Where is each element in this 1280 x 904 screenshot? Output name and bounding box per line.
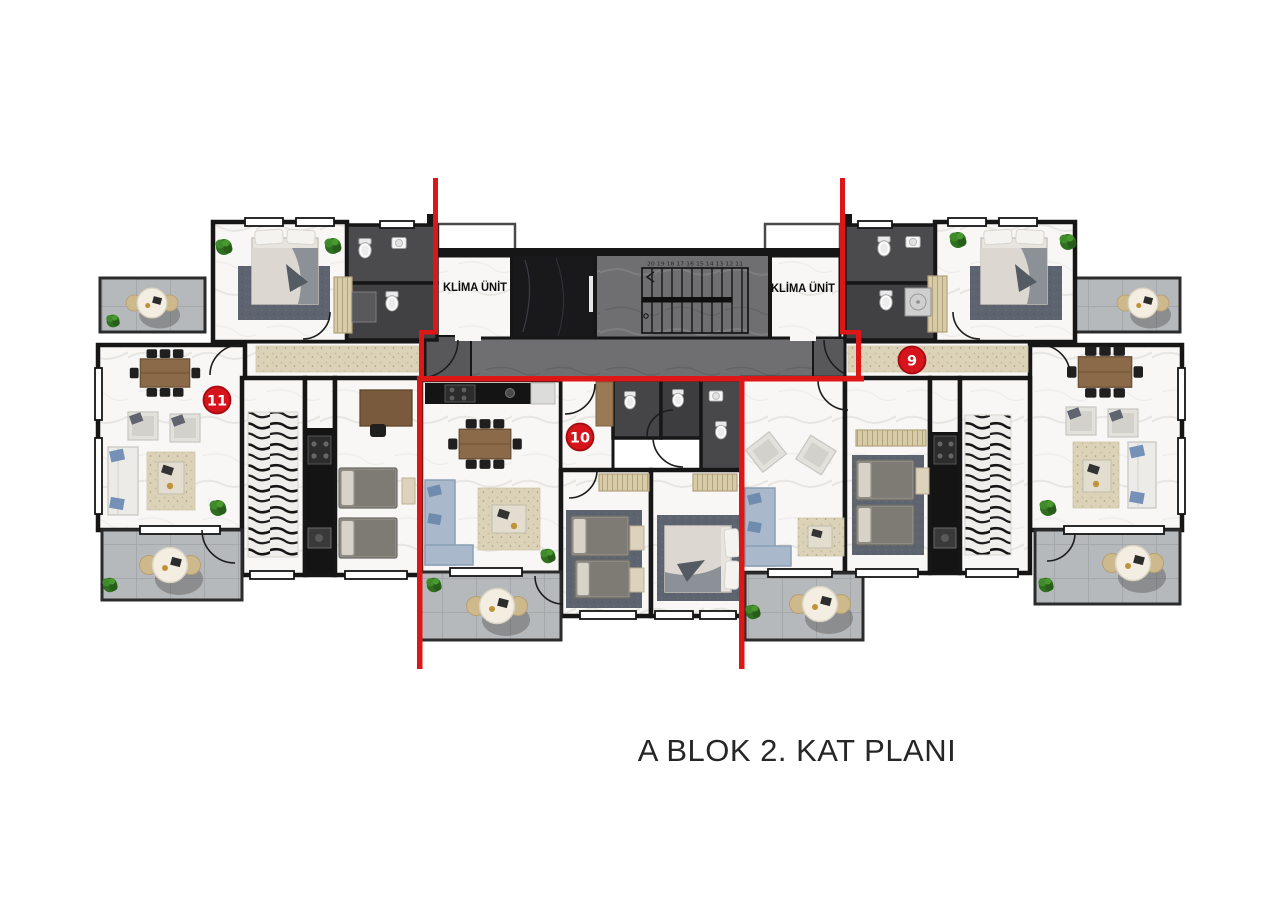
bathroom-middle-2 xyxy=(661,380,701,438)
shower-icon xyxy=(905,288,931,316)
window xyxy=(1178,438,1185,514)
toilet-icon xyxy=(386,292,398,311)
unit-badge-10: 10 xyxy=(567,424,594,451)
klima-unit-label-left: KLİMA ÜNİT xyxy=(443,279,508,294)
window xyxy=(700,611,736,619)
sink-icon xyxy=(906,237,920,248)
floor-plan-page: 20 19 18 17 16 15 14 13 12 11 1 2 3 4 5 … xyxy=(0,0,1280,904)
toilet-icon xyxy=(878,237,890,256)
window xyxy=(140,526,220,534)
window xyxy=(380,221,414,228)
red-line-vertical-top-left xyxy=(433,178,438,334)
coffee-table-small-living xyxy=(798,518,844,556)
central-core: 20 19 18 17 16 15 14 13 12 11 1 2 3 4 5 … xyxy=(420,214,862,380)
unit-badge-11: 11 xyxy=(204,387,231,414)
window xyxy=(1064,526,1164,534)
sofa-right xyxy=(1128,442,1156,508)
red-line-vertical-bottom-right xyxy=(739,376,745,669)
shower-icon xyxy=(352,292,376,322)
corridor-alcove-left xyxy=(425,336,471,380)
window xyxy=(345,571,407,579)
window xyxy=(95,438,102,514)
toilet-icon xyxy=(880,291,892,310)
coffee-table-middle xyxy=(478,488,540,550)
wardrobe-left xyxy=(334,277,352,333)
unit-number-11: 11 xyxy=(207,394,227,410)
unit-badge-9: 9 xyxy=(899,347,926,374)
window xyxy=(250,571,294,579)
shaft-box-left xyxy=(438,224,515,252)
plan-title: A BLOK 2. KAT PLANI xyxy=(638,733,957,768)
kitchen-counter-right xyxy=(932,432,958,573)
elevator xyxy=(512,254,596,340)
left-wing xyxy=(95,218,437,600)
corridor xyxy=(423,338,862,380)
stair-handrail xyxy=(642,297,732,303)
twin-beds-middle xyxy=(566,510,644,608)
toilet-icon xyxy=(715,422,726,439)
coffee-table-left xyxy=(147,452,195,510)
zebra-rug-left xyxy=(248,412,298,557)
coffee-table-right xyxy=(1073,442,1119,508)
double-bed-right xyxy=(981,229,1047,304)
red-notch-right xyxy=(856,330,861,380)
door-arc xyxy=(653,437,683,467)
stairwell: 20 19 18 17 16 15 14 13 12 11 1 2 3 4 5 … xyxy=(595,254,770,343)
window xyxy=(655,611,693,619)
double-bed-middle xyxy=(657,515,740,601)
bathroom-middle-1 xyxy=(613,380,661,438)
double-bed-left xyxy=(252,229,318,304)
floor-plan: 20 19 18 17 16 15 14 13 12 11 1 2 3 4 5 … xyxy=(0,0,1280,904)
kitchen-counter-left xyxy=(306,428,333,573)
twin-beds-right xyxy=(852,455,929,555)
hall-runner-left xyxy=(256,346,419,372)
window xyxy=(245,218,283,226)
sink-icon xyxy=(392,238,406,249)
sofa-left xyxy=(108,447,138,515)
wardrobe-double-middle xyxy=(693,474,737,491)
toilet-icon xyxy=(624,392,635,409)
klima-left-doorway xyxy=(455,334,481,341)
stair-step-numbers-top: 20 19 18 17 16 15 14 13 12 11 xyxy=(647,262,743,268)
hall-runner-right xyxy=(848,346,1028,372)
window xyxy=(450,568,522,576)
toilet-icon xyxy=(359,239,371,258)
toilet-icon xyxy=(672,390,683,407)
window xyxy=(768,569,832,577)
zebra-rug-right xyxy=(965,415,1011,555)
window xyxy=(966,569,1018,577)
window xyxy=(580,611,636,619)
window xyxy=(95,368,102,420)
window xyxy=(1178,368,1185,420)
window xyxy=(948,218,986,226)
middle-unit xyxy=(421,380,742,640)
red-line-vertical-bottom-left xyxy=(417,376,423,669)
bathroom-right-1 xyxy=(845,225,935,283)
red-notch-left xyxy=(419,330,424,380)
klima-right-doorway xyxy=(790,334,816,341)
red-line-horizontal xyxy=(417,376,864,382)
klima-room-left xyxy=(437,256,513,340)
window xyxy=(296,218,334,226)
entry-floor-strip xyxy=(596,382,613,426)
sink-icon xyxy=(709,391,723,401)
red-line-vertical-top-right xyxy=(840,178,845,334)
window xyxy=(858,221,892,228)
wardrobe-twin-right xyxy=(856,430,926,446)
unit-number-9: 9 xyxy=(907,354,917,370)
klima-room-right xyxy=(766,256,840,340)
kitchen-counter-middle xyxy=(425,383,555,404)
wardrobe-twin-middle xyxy=(599,474,649,491)
window xyxy=(856,569,918,577)
shaft-box-right xyxy=(765,224,840,252)
window xyxy=(999,218,1037,226)
unit-number-10: 10 xyxy=(570,431,590,447)
klima-unit-label-right: KLİMA ÜNİT xyxy=(771,280,836,295)
